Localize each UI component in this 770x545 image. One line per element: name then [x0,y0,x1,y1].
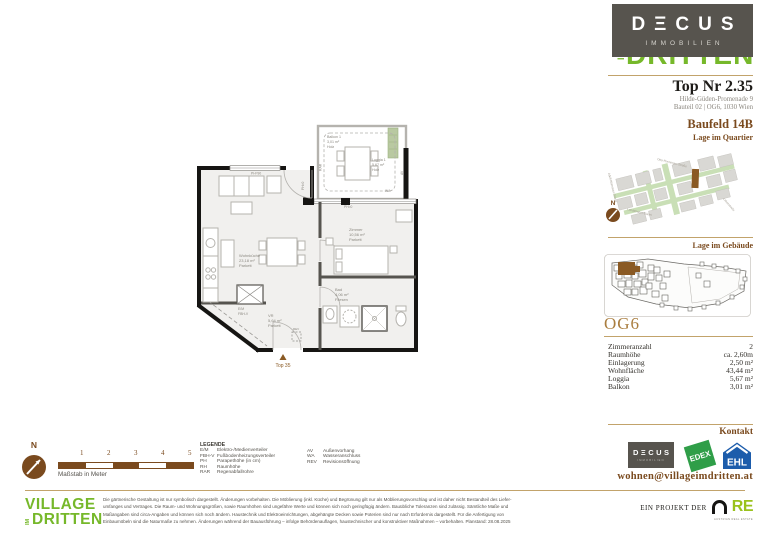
gebaeude-subtitle: Lage im Gebäude [553,241,753,250]
floor-label: OG6 [604,314,640,334]
annotation-av: AV [400,170,404,175]
baufeld-title: Baufeld 14B [553,117,753,132]
decus-immobilien-small: IMMOBILIEN [637,459,664,462]
village-line2: DRITTEN [32,511,103,528]
decus-logo-small: DΞCUS IMMOBILIEN [628,442,674,468]
divider-header [608,75,753,76]
scale-number: 3 [134,449,138,457]
decus-logo: DΞCUS IMMOBILIEN [612,4,753,57]
annotation-em: E/M [238,307,244,311]
street-label: Adolf-Blamauer-Gasse [607,172,618,203]
street-label: Leberstraße [722,197,736,212]
annotation-ph0: PH=0 [344,205,353,209]
floor-plan: Wohnküche 23,18 m² Parkett Zimmer 10,56 … [185,112,440,390]
divider-kontakt [608,424,753,425]
scale-caption: Maßstab in Meter [58,471,107,478]
scale-number: 2 [107,449,111,457]
legend-abbr: RAR [200,470,217,475]
room-area: 5,67 m² [372,163,385,167]
project-prefix-label: EIN PROJEKT DER [640,504,706,514]
legend-text: Regenabfallrohre [217,470,254,475]
scale-number: 1 [80,449,84,457]
kontakt-title: Kontakt [553,427,753,437]
room-label: Loggia 1 [372,158,386,162]
legend-abbr: REV [307,460,323,465]
disclaimer-line: Einbaumöbeln sind die Naturmaße zu nehme… [103,518,511,525]
decus-immobilien-label: IMMOBILIEN [641,40,723,47]
are-project-row: EIN PROJEKT DER RE AUSTRIAN REAL ESTATE [640,500,753,514]
legend-text: Elektro-/Medienverteiler [217,448,268,453]
address-line-1: Hilde-Güden-Promenade 9 [553,96,753,103]
room-label: Balkon 1 [327,135,341,139]
quartier-subtitle: Lage im Quartier [553,133,753,142]
scale-bar [58,462,194,469]
decus-wordmark: DΞCUS [622,14,742,36]
room-floor: Holz [327,145,334,149]
entry-arrow-icon [280,354,287,360]
divider-footer [25,490,745,491]
legend-text: Parapethöhe (in cm) [217,459,260,464]
room-floor: Holz [372,168,379,172]
village-im-rotated: IM [21,518,36,525]
room-floor: Parkett [239,263,253,268]
annotation-rar: RAR [319,163,323,171]
are-wordmark: RE [732,500,753,514]
address-line-2: Bauteil 02 | OG6, 1030 Wien [553,104,753,111]
room-floor: Parkett [349,237,363,242]
building-location-drawing [604,253,752,319]
floorplan-sheet: IMDRITTEN DΞCUS IMMOBILIEN Top Nr 2.35 H… [0,0,770,545]
legend: LEGENDE E/MElektro-/Medienverteiler FBH-… [200,443,275,475]
ehl-logo: EHL [722,442,752,470]
map-compass-n: N [611,200,616,207]
compass-n-label: N [31,440,37,450]
edex-logo: EDEX [680,438,720,474]
disclaimer-line: Maßangaben sind circa-Angaben und können… [103,511,511,518]
unit-title: Top Nr 2.35 [553,78,753,96]
quartier-highlight-baufeld [691,169,699,188]
divider-gebaeude [608,237,753,238]
scale-number: 5 [188,449,192,457]
room-floor: Fliesen [335,297,348,302]
room-floor: Parkett [268,323,282,328]
ehl-wordmark: EHL [727,458,747,469]
table-row: Balkon3,01 m² [608,383,753,391]
are-subtitle: AUSTRIAN REAL ESTATE [714,518,753,521]
annotation-ph0-vertical: PH=0 [301,181,305,190]
legend-text: Wasseranschluss [323,454,360,459]
contact-email-link[interactable]: wohnen@villageimdritten.at [503,471,753,482]
plan-compass: N [20,438,50,484]
legend-text: Revisionsöffnung [323,460,360,465]
fact-label: Balkon [608,383,630,391]
annotation-wa: WA [385,189,391,193]
annotation-ph90: PH=90 [251,172,261,176]
planter [388,128,398,158]
annotation-rev: REV [293,327,299,331]
scale-number: 4 [161,449,165,457]
decus-wordmark-small: DΞCUS [630,448,671,457]
legend-column-2: AVAußenvorhang WAWasseranschluss REVRevi… [307,449,360,465]
legend-text: Raumhöhe [217,465,240,470]
quartier-blocks [609,148,742,228]
legend-item: REVRevisionsöffnung [307,460,360,465]
disclaimer-line: umfanges und Vertrages. Die Raum- und Wo… [103,503,511,510]
facts-table: Zimmeranzahl2 Raumhöheca. 2,60m Einlager… [608,343,753,392]
building-highlight-unit [618,262,635,275]
entry-label: Top 35 [275,363,290,369]
annotation-fbhv: FBH-V [238,312,249,316]
street-label: Otto-Preminger-Straße [657,157,688,168]
room-area: 3,01 m² [327,140,340,144]
disclaimer-line: Die gärtnerische Gestaltung ist nur symb… [103,496,511,503]
legend-item: RARRegenabfallrohre [200,470,275,475]
village-line1: VILLAGE [25,497,103,512]
village-logo: VILLAGE IMDRITTEN [25,497,103,529]
fact-value: 3,01 m² [730,383,753,391]
quartier-map: Otto-Preminger-Straße Landstraßer Gürtel… [605,147,755,235]
divider-facts [604,336,753,337]
are-arc-icon [712,500,727,514]
disclaimer-text: Die gärtnerische Gestaltung ist nur symb… [103,496,511,525]
